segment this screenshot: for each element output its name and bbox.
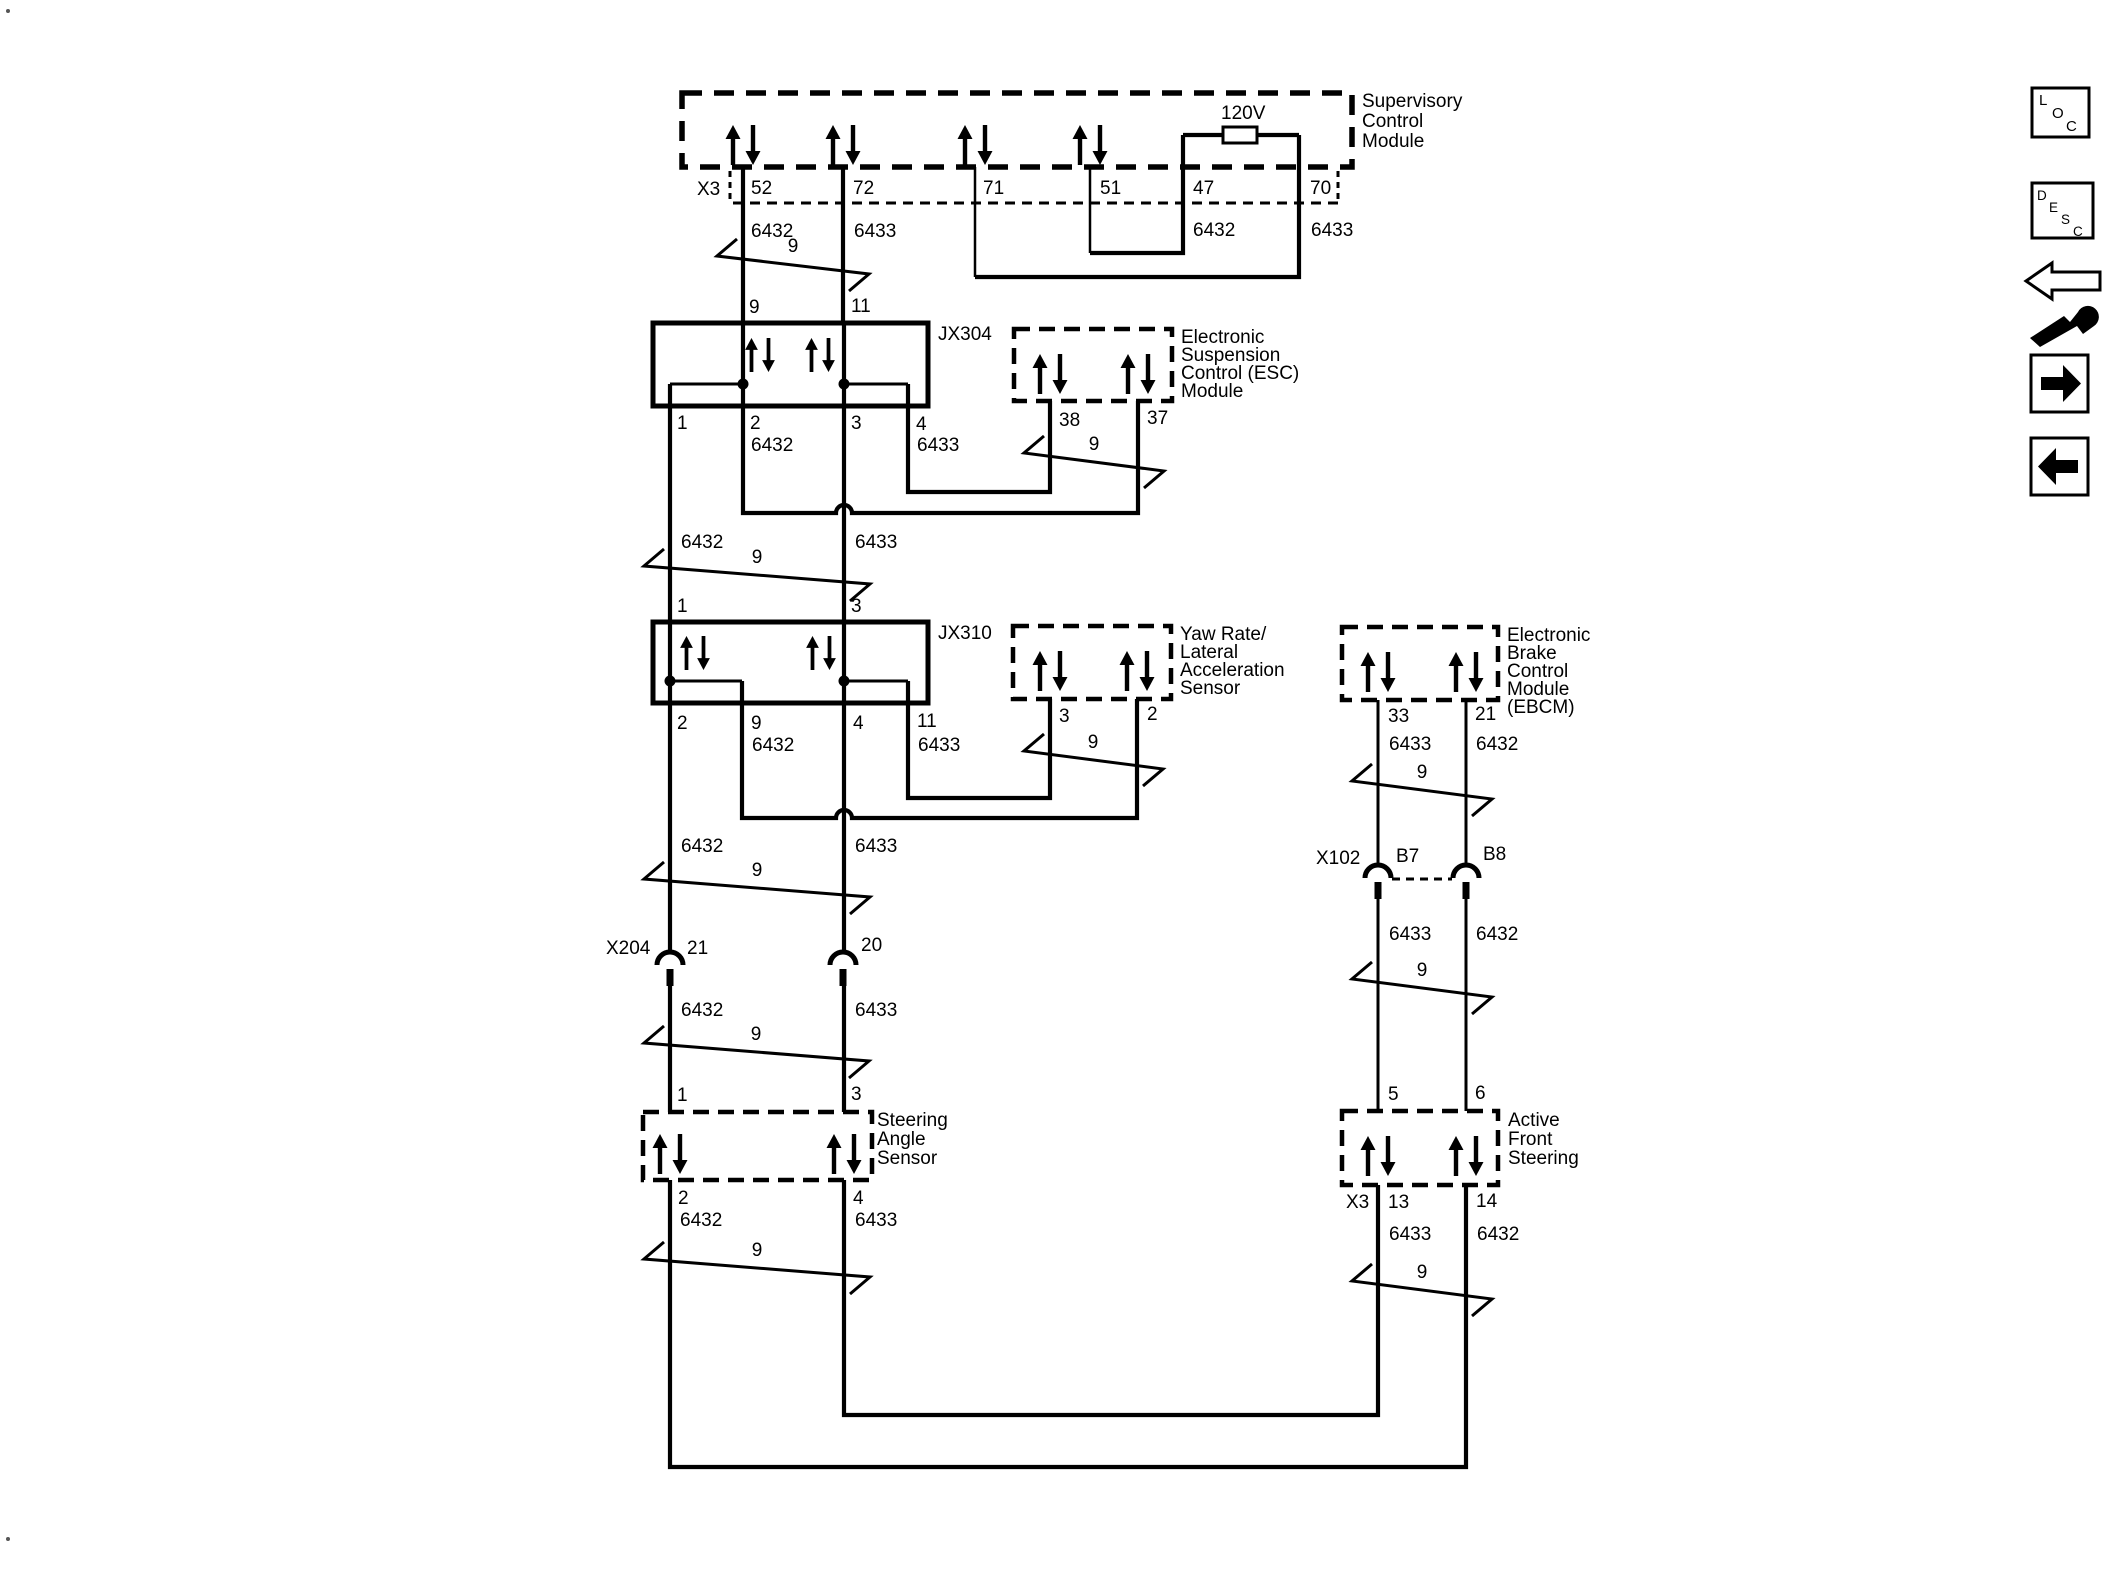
pin-label: 38 (1059, 410, 1080, 431)
pin-label: 5 (1388, 1084, 1399, 1105)
pin-label: B7 (1396, 846, 1419, 867)
connector-symbol (1365, 865, 1391, 899)
next-button[interactable] (2031, 355, 2088, 412)
pin-label: 4 (853, 713, 864, 734)
module-name-line: Module (1181, 381, 1243, 402)
connector-label: X3 (1346, 1192, 1369, 1213)
twisted-pair-label: 9 (1417, 960, 1428, 981)
desc-button[interactable]: D E S C (2032, 183, 2093, 239)
pin-label: 52 (751, 178, 772, 199)
wire-label: 6432 (752, 735, 794, 756)
pin-label: 9 (749, 297, 760, 318)
wire-label: 6433 (855, 1000, 897, 1021)
pin-label: 1 (677, 413, 688, 434)
updown-arrows-icon (653, 1134, 688, 1174)
twisted-pair-label: 9 (1089, 434, 1100, 455)
module-name-line: Sensor (877, 1148, 938, 1169)
updown-arrows-icon (827, 1134, 862, 1174)
pin-label: 3 (1059, 706, 1070, 727)
updown-arrows-icon (806, 636, 836, 670)
module-name-line: Angle (877, 1129, 926, 1150)
updown-arrows-icon (680, 636, 710, 670)
wire-label: 6432 (1476, 924, 1518, 945)
pin-label: 47 (1193, 178, 1214, 199)
wire-label: 6432 (1476, 734, 1518, 755)
pin-label: 14 (1476, 1191, 1498, 1212)
jx304-box (653, 323, 928, 406)
wire-label: 6433 (1389, 1224, 1431, 1245)
junction-dot (839, 676, 850, 687)
pin-label: 11 (851, 296, 871, 317)
pin-label: 2 (750, 413, 761, 434)
resistor-voltage-label: 120V (1221, 103, 1266, 124)
updown-arrows-icon (1449, 1136, 1484, 1176)
loc-letter: L (2039, 92, 2047, 109)
pin-label: 4 (916, 414, 927, 435)
updown-arrows-icon (1120, 651, 1155, 691)
wire-label: 6432 (681, 532, 723, 553)
connector-label: X102 (1316, 848, 1360, 869)
connector-label: X3 (697, 179, 720, 200)
twisted-pair-label: 9 (1417, 1262, 1428, 1283)
wire-label: 6433 (1389, 734, 1431, 755)
wire-label: 6432 (751, 435, 793, 456)
wrench-arrow-icon[interactable] (2026, 263, 2100, 347)
supervisory-control-module: 120V Supervisory Control Module X3 52 72… (682, 91, 1463, 277)
wire-label: 6432 (681, 1000, 723, 1021)
junction-block-jx310: 1 3 JX310 2 9 4 11 6432 6433 (653, 596, 992, 756)
wire-label: 6432 (1477, 1224, 1519, 1245)
twisted-pair-label: 9 (1088, 732, 1099, 753)
pin-label: 2 (677, 713, 688, 734)
updown-arrows-icon (1033, 651, 1068, 691)
pin-label: 3 (851, 1084, 862, 1105)
module-name-line: Steering (877, 1110, 948, 1131)
pin-label: 21 (687, 938, 708, 959)
updown-arrows-icon (1033, 354, 1068, 394)
junction-name: JX310 (938, 623, 992, 644)
inline-connector-x102: X102 B7 B8 6433 6432 (1316, 844, 1518, 945)
pin-label: 21 (1475, 704, 1496, 725)
wire-label: 6433 (1311, 220, 1353, 241)
jx310-box (653, 622, 928, 703)
resistor-symbol (1223, 127, 1257, 143)
steering-angle-sensor: 1 3 Steering Angle Sensor 2 4 6432 6433 (643, 1084, 948, 1231)
wire-label: 6433 (854, 221, 896, 242)
wire-label: 6432 (1193, 220, 1235, 241)
updown-arrows-icon (826, 125, 861, 165)
pin-label: 11 (917, 711, 937, 732)
terminating-resistor (1183, 127, 1299, 143)
junction-block-jx304: 9 11 JX304 1 2 3 4 6432 6433 (653, 296, 992, 456)
updown-arrows-icon (1121, 354, 1156, 394)
wiring-diagram-page: 120V Supervisory Control Module X3 52 72… (0, 0, 2124, 1593)
updown-arrows-icon (1361, 1136, 1396, 1176)
junction-dot (839, 379, 850, 390)
updown-arrows-icon (726, 125, 761, 165)
twisted-pair-label: 9 (788, 236, 799, 257)
module-name-line: Steering (1508, 1148, 1579, 1169)
prev-button[interactable] (2031, 438, 2088, 495)
esc-module: Electronic Suspension Control (ESC) Modu… (1014, 327, 1299, 431)
updown-arrows-icon (805, 338, 835, 372)
pin-label: B8 (1483, 844, 1506, 865)
updown-arrows-icon (1073, 125, 1108, 165)
module-name-line: Sensor (1180, 678, 1241, 699)
loc-letter: C (2066, 118, 2077, 135)
pin-label: 2 (1147, 704, 1158, 725)
wire-label: 6432 (680, 1210, 722, 1231)
twisted-pair-label: 9 (752, 1240, 763, 1261)
wire-label: 6433 (918, 735, 960, 756)
wire-label: 6433 (1389, 924, 1431, 945)
twisted-pair-label: 9 (1417, 762, 1428, 783)
pin-label: 1 (677, 596, 688, 617)
wire-resistor-loop (975, 135, 1299, 277)
pin-label: 72 (853, 178, 874, 199)
artifact-dot (6, 9, 10, 13)
module-name-line: Supervisory (1362, 91, 1463, 112)
twisted-pair-label: 9 (751, 1024, 762, 1045)
pin-label: 51 (1100, 178, 1121, 199)
junction-dot (665, 676, 676, 687)
pin-label: 20 (861, 935, 882, 956)
pin-label: 37 (1147, 408, 1168, 429)
pin-label: 71 (983, 178, 1004, 199)
junction-name: JX304 (938, 324, 992, 345)
connector-label: X204 (606, 938, 651, 959)
wire-label: 6433 (855, 836, 897, 857)
pin-label: 2 (678, 1188, 689, 1209)
twisted-pair-label: 9 (752, 860, 763, 881)
wire-label: 6432 (681, 836, 723, 857)
module-name-line: Control (1362, 111, 1423, 132)
desc-letter: D (2037, 188, 2047, 203)
desc-letter: S (2061, 212, 2070, 227)
wire-label: 6433 (855, 532, 897, 553)
updown-arrows-icon (1361, 652, 1396, 692)
pin-label: 3 (851, 413, 862, 434)
updown-arrows-icon (745, 338, 775, 372)
wiring-diagram: 120V Supervisory Control Module X3 52 72… (0, 0, 2124, 1593)
module-name-line: Front (1508, 1129, 1553, 1150)
inline-connector-x204: X204 21 20 6432 6433 (606, 935, 897, 1021)
connector-symbol (830, 952, 856, 986)
viewer-toolbar: L O C D E S C (2026, 88, 2100, 495)
wire-6433-bus (843, 167, 1378, 1415)
desc-letter: C (2073, 224, 2083, 239)
module-name-line: Module (1362, 131, 1424, 152)
module-name-line: Active (1508, 1110, 1560, 1131)
updown-arrows-icon (1449, 652, 1484, 692)
pin-label: 6 (1475, 1083, 1486, 1104)
pin-label: 1 (677, 1085, 688, 1106)
module-name-line: (EBCM) (1507, 697, 1575, 718)
updown-arrows-icon (958, 125, 993, 165)
twisted-pair-label: 9 (752, 547, 763, 568)
pin-label: 9 (751, 713, 762, 734)
connector-symbol (657, 952, 683, 986)
wire-label: 6433 (917, 435, 959, 456)
pin-label: 33 (1388, 706, 1409, 727)
wire-label: 6433 (855, 1210, 897, 1231)
twisted-pair-symbols: 9 9 9 9 9 9 9 9 9 9 (644, 236, 1492, 1316)
junction-dot (738, 379, 749, 390)
pin-label: 4 (853, 1188, 864, 1209)
yaw-rate-sensor: Yaw Rate/ Lateral Acceleration Sensor 3 … (1013, 624, 1285, 727)
loc-button[interactable]: L O C (2032, 88, 2089, 137)
pin-label: 13 (1388, 1192, 1409, 1213)
desc-letter: E (2049, 200, 2058, 215)
pin-label: 70 (1310, 178, 1331, 199)
loc-letter: O (2052, 105, 2064, 122)
connector-symbol (1453, 865, 1479, 899)
artifact-dot (6, 1537, 10, 1541)
